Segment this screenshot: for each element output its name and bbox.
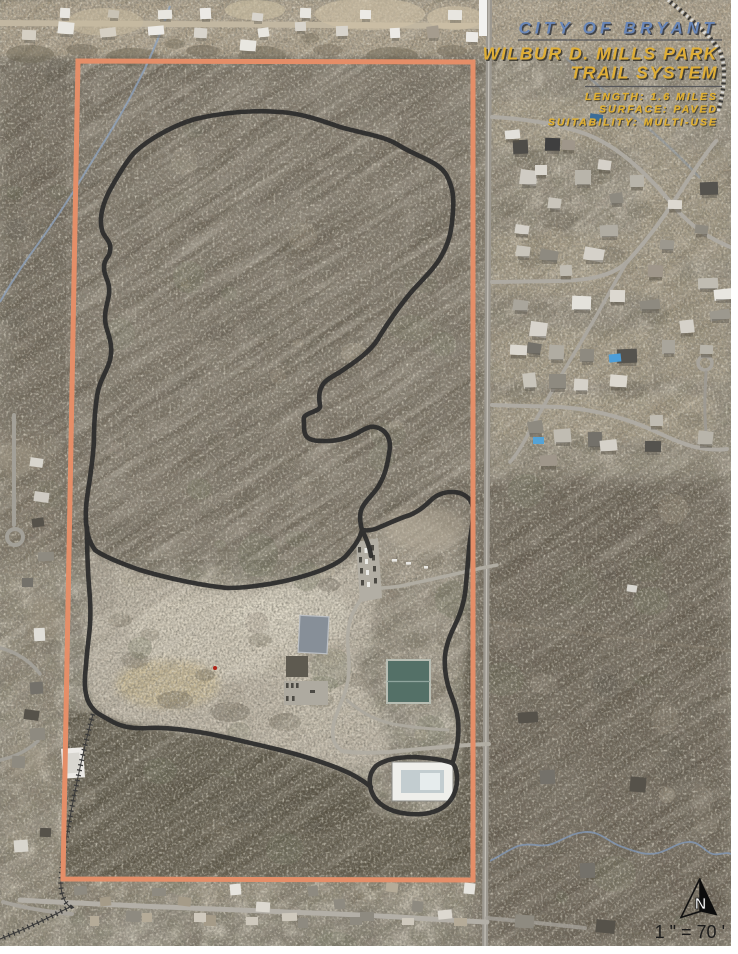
svg-text:TRAIL SYSTEM: TRAIL SYSTEM [570,63,718,83]
svg-text:N: N [695,896,707,913]
svg-text:CITY OF BRYANT: CITY OF BRYANT [518,19,718,38]
svg-text:SUITABILITY: MULTI-USE: SUITABILITY: MULTI-USE [548,118,718,129]
svg-text:WILBUR D. MILLS PARK: WILBUR D. MILLS PARK [483,43,718,63]
svg-text:1 " = 70 ': 1 " = 70 ' [655,922,725,942]
svg-text:SURFACE: PAVED: SURFACE: PAVED [599,105,718,116]
svg-text:LENGTH: 1.6 MILES: LENGTH: 1.6 MILES [585,92,718,103]
